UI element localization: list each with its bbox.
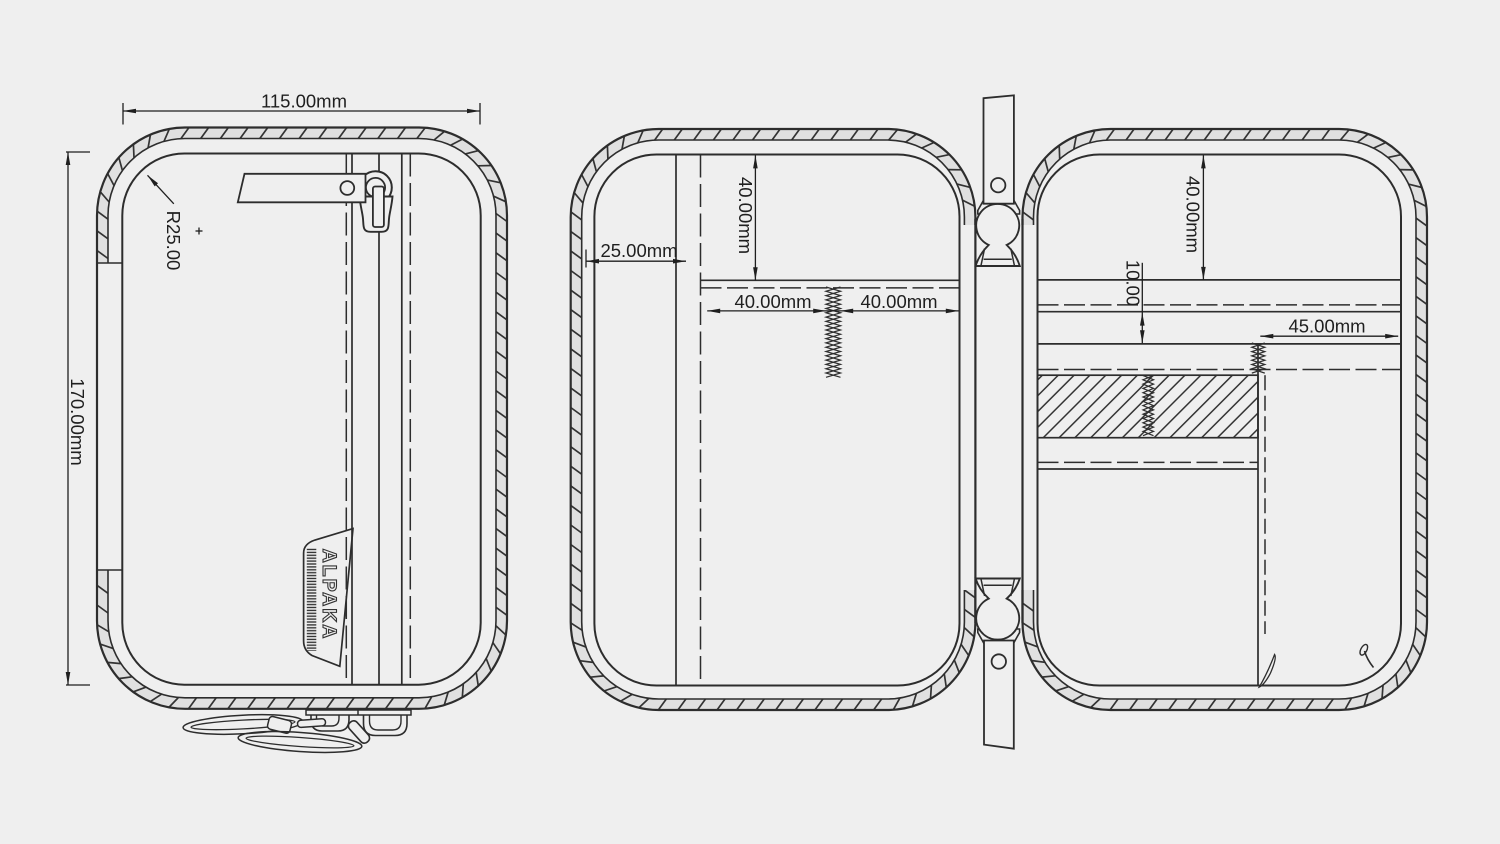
svg-text:45.00mm: 45.00mm [1288, 315, 1365, 336]
svg-text:40.00mm: 40.00mm [860, 291, 937, 312]
svg-text:40.00mm: 40.00mm [735, 177, 756, 254]
svg-text:ALPAKA: ALPAKA [318, 549, 340, 641]
svg-text:40.00mm: 40.00mm [734, 291, 811, 312]
svg-text:R25.00: R25.00 [163, 211, 184, 271]
svg-text:40.00mm: 40.00mm [1183, 176, 1204, 253]
svg-text:170.00mm: 170.00mm [67, 378, 88, 465]
svg-text:25.00mm: 25.00mm [600, 240, 677, 261]
svg-text:10.00: 10.00 [1123, 260, 1144, 306]
svg-text:115.00mm: 115.00mm [261, 91, 347, 112]
